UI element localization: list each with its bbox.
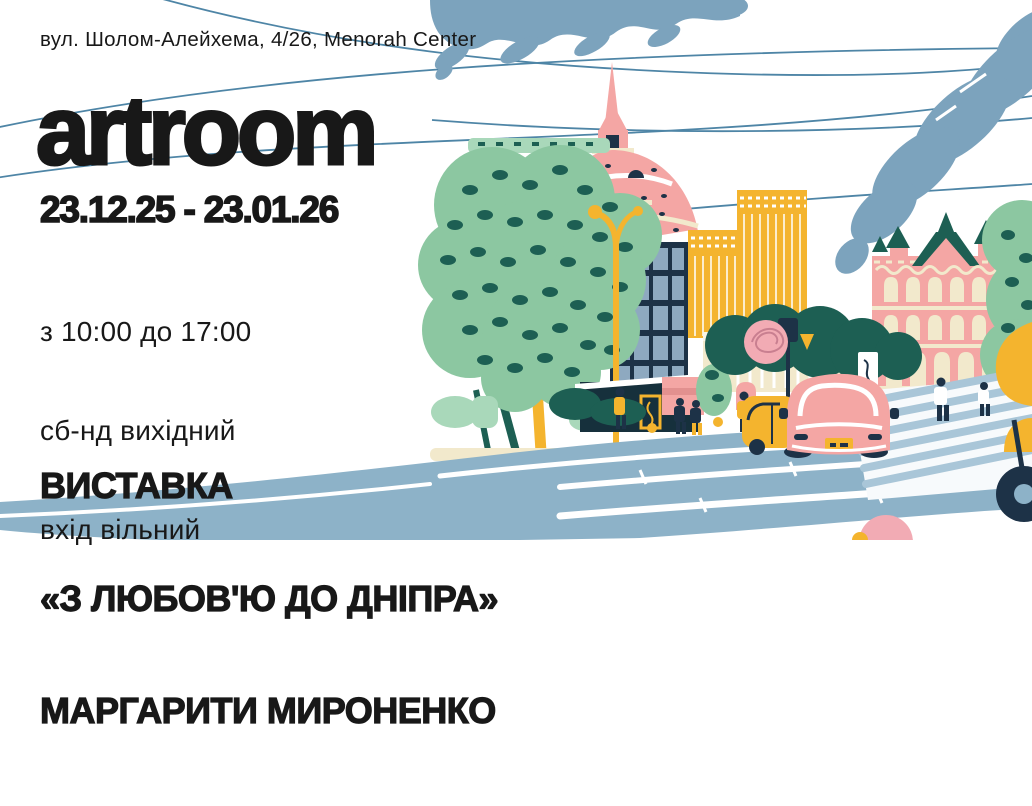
exhibition-title-block: ВИСТАВКА «З ЛЮБОВ'Ю ДО ДНІПРА» МАРГАРИТИ… — [40, 392, 498, 805]
exhibition-title: «З ЛЮБОВ'Ю ДО ДНІПРА» — [40, 580, 498, 618]
brand-logo: artroom — [36, 82, 375, 179]
exhibition-label: ВИСТАВКА — [40, 467, 498, 505]
poster: вул. Шолом-Алейхема, 4/26, Menorah Cente… — [0, 0, 1032, 540]
exhibition-dates: 23.12.25 - 23.01.26 — [40, 189, 338, 231]
exhibition-artist: МАРГАРИТИ МИРОНЕНКО — [40, 692, 498, 730]
schedule-hours: з 10:00 до 17:00 — [40, 315, 251, 348]
address: вул. Шолом-Алейхема, 4/26, Menorah Cente… — [40, 28, 476, 52]
